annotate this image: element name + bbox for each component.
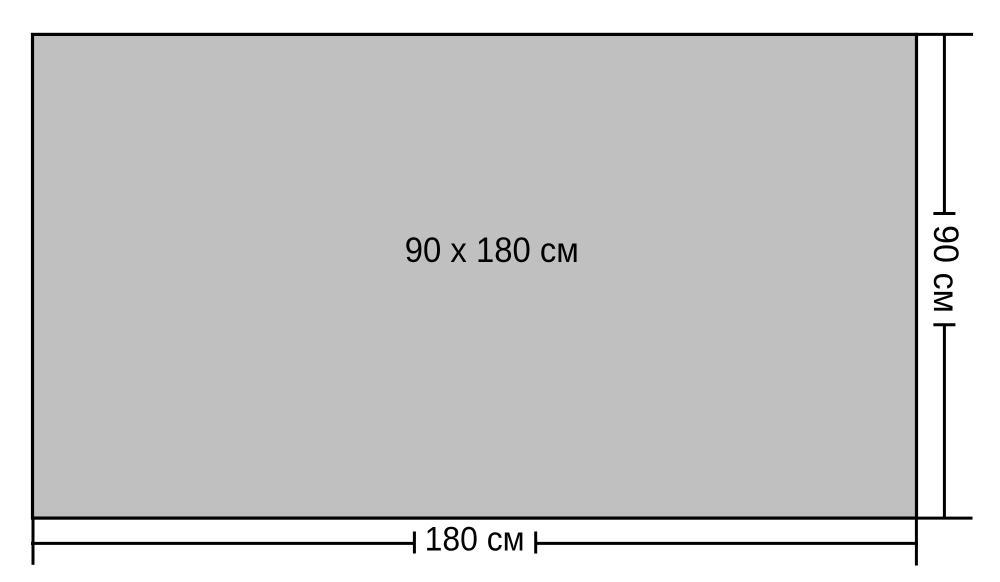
svg-text:180 см: 180 см bbox=[425, 521, 525, 559]
svg-text:90 x 180 см: 90 x 180 см bbox=[405, 231, 579, 270]
svg-text:90 см: 90 см bbox=[926, 225, 965, 313]
